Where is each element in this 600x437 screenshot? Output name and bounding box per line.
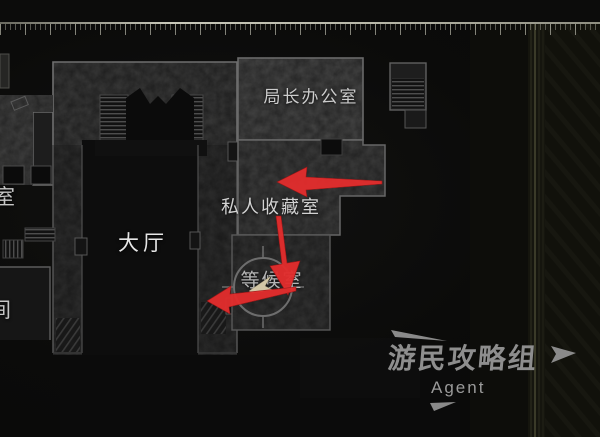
- room-private-collection: [238, 139, 385, 235]
- label-main-hall: 大厅: [118, 227, 168, 257]
- top-wall-ticks-long: [0, 24, 600, 35]
- stairs-leg-left: [56, 318, 80, 352]
- room-main-hall: [33, 62, 241, 355]
- label-waiting-room: 等候室: [240, 266, 303, 293]
- ladder-west: [3, 240, 23, 258]
- label-west-room-partial: 室: [0, 181, 15, 211]
- stairs-left: [100, 95, 128, 140]
- room-annex-stairs: [390, 63, 426, 128]
- label-west-lower-room-partial: 间: [0, 294, 11, 324]
- right-striped-wall: [545, 22, 600, 437]
- stairs-leg-right: [201, 302, 226, 334]
- label-chief-office: 局长办公室: [264, 83, 359, 108]
- game-map-screen: 局长办公室 私人收藏室 大厅 等候室 室 间 游民攻略组 Agent: [0, 0, 600, 437]
- wall-fragment: [0, 54, 9, 88]
- top-wall: [0, 0, 600, 22]
- label-private-collection: 私人收藏室: [221, 193, 321, 219]
- right-dark-panel: [470, 22, 528, 437]
- stairs-west: [25, 228, 55, 241]
